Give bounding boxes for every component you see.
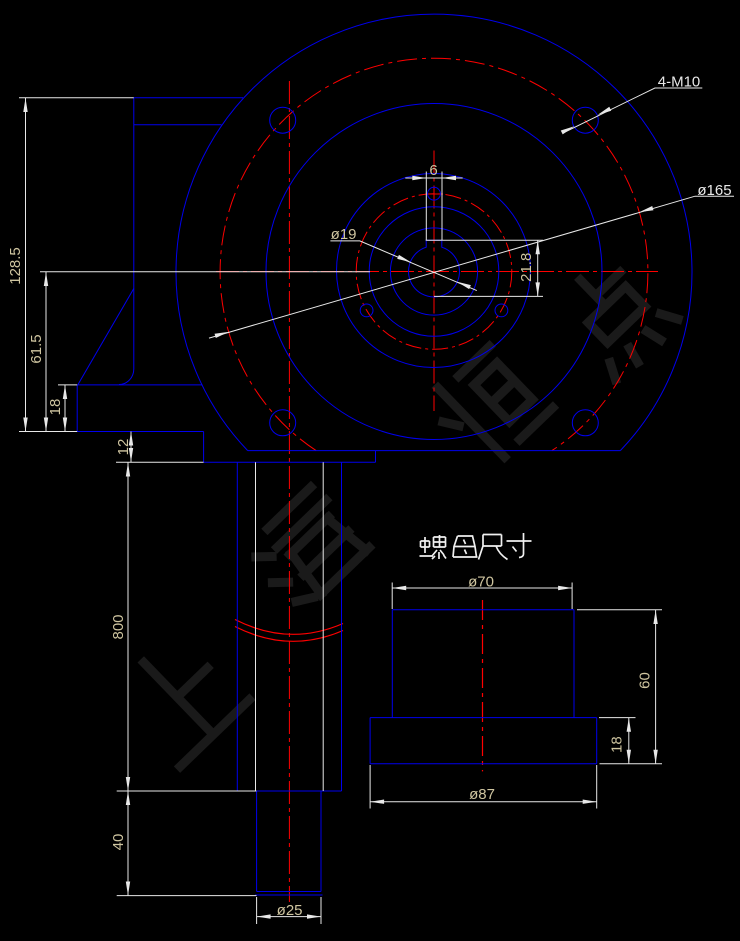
svg-text:18: 18 — [609, 736, 626, 753]
svg-text:ø165: ø165 — [697, 182, 731, 199]
svg-text:ø19: ø19 — [331, 226, 357, 243]
svg-text:4-M10: 4-M10 — [658, 74, 701, 91]
svg-text:18: 18 — [47, 399, 64, 416]
svg-text:800: 800 — [110, 614, 127, 639]
svg-text:60: 60 — [637, 672, 654, 689]
svg-text:61.5: 61.5 — [28, 334, 45, 363]
svg-text:21.8: 21.8 — [518, 253, 535, 282]
svg-text:40: 40 — [110, 834, 127, 851]
svg-text:ø70: ø70 — [468, 574, 494, 591]
svg-text:12: 12 — [115, 439, 132, 456]
svg-text:6: 6 — [429, 162, 437, 179]
svg-text:128.5: 128.5 — [7, 247, 24, 285]
svg-text:ø25: ø25 — [277, 902, 303, 919]
svg-text:ø87: ø87 — [469, 786, 495, 803]
